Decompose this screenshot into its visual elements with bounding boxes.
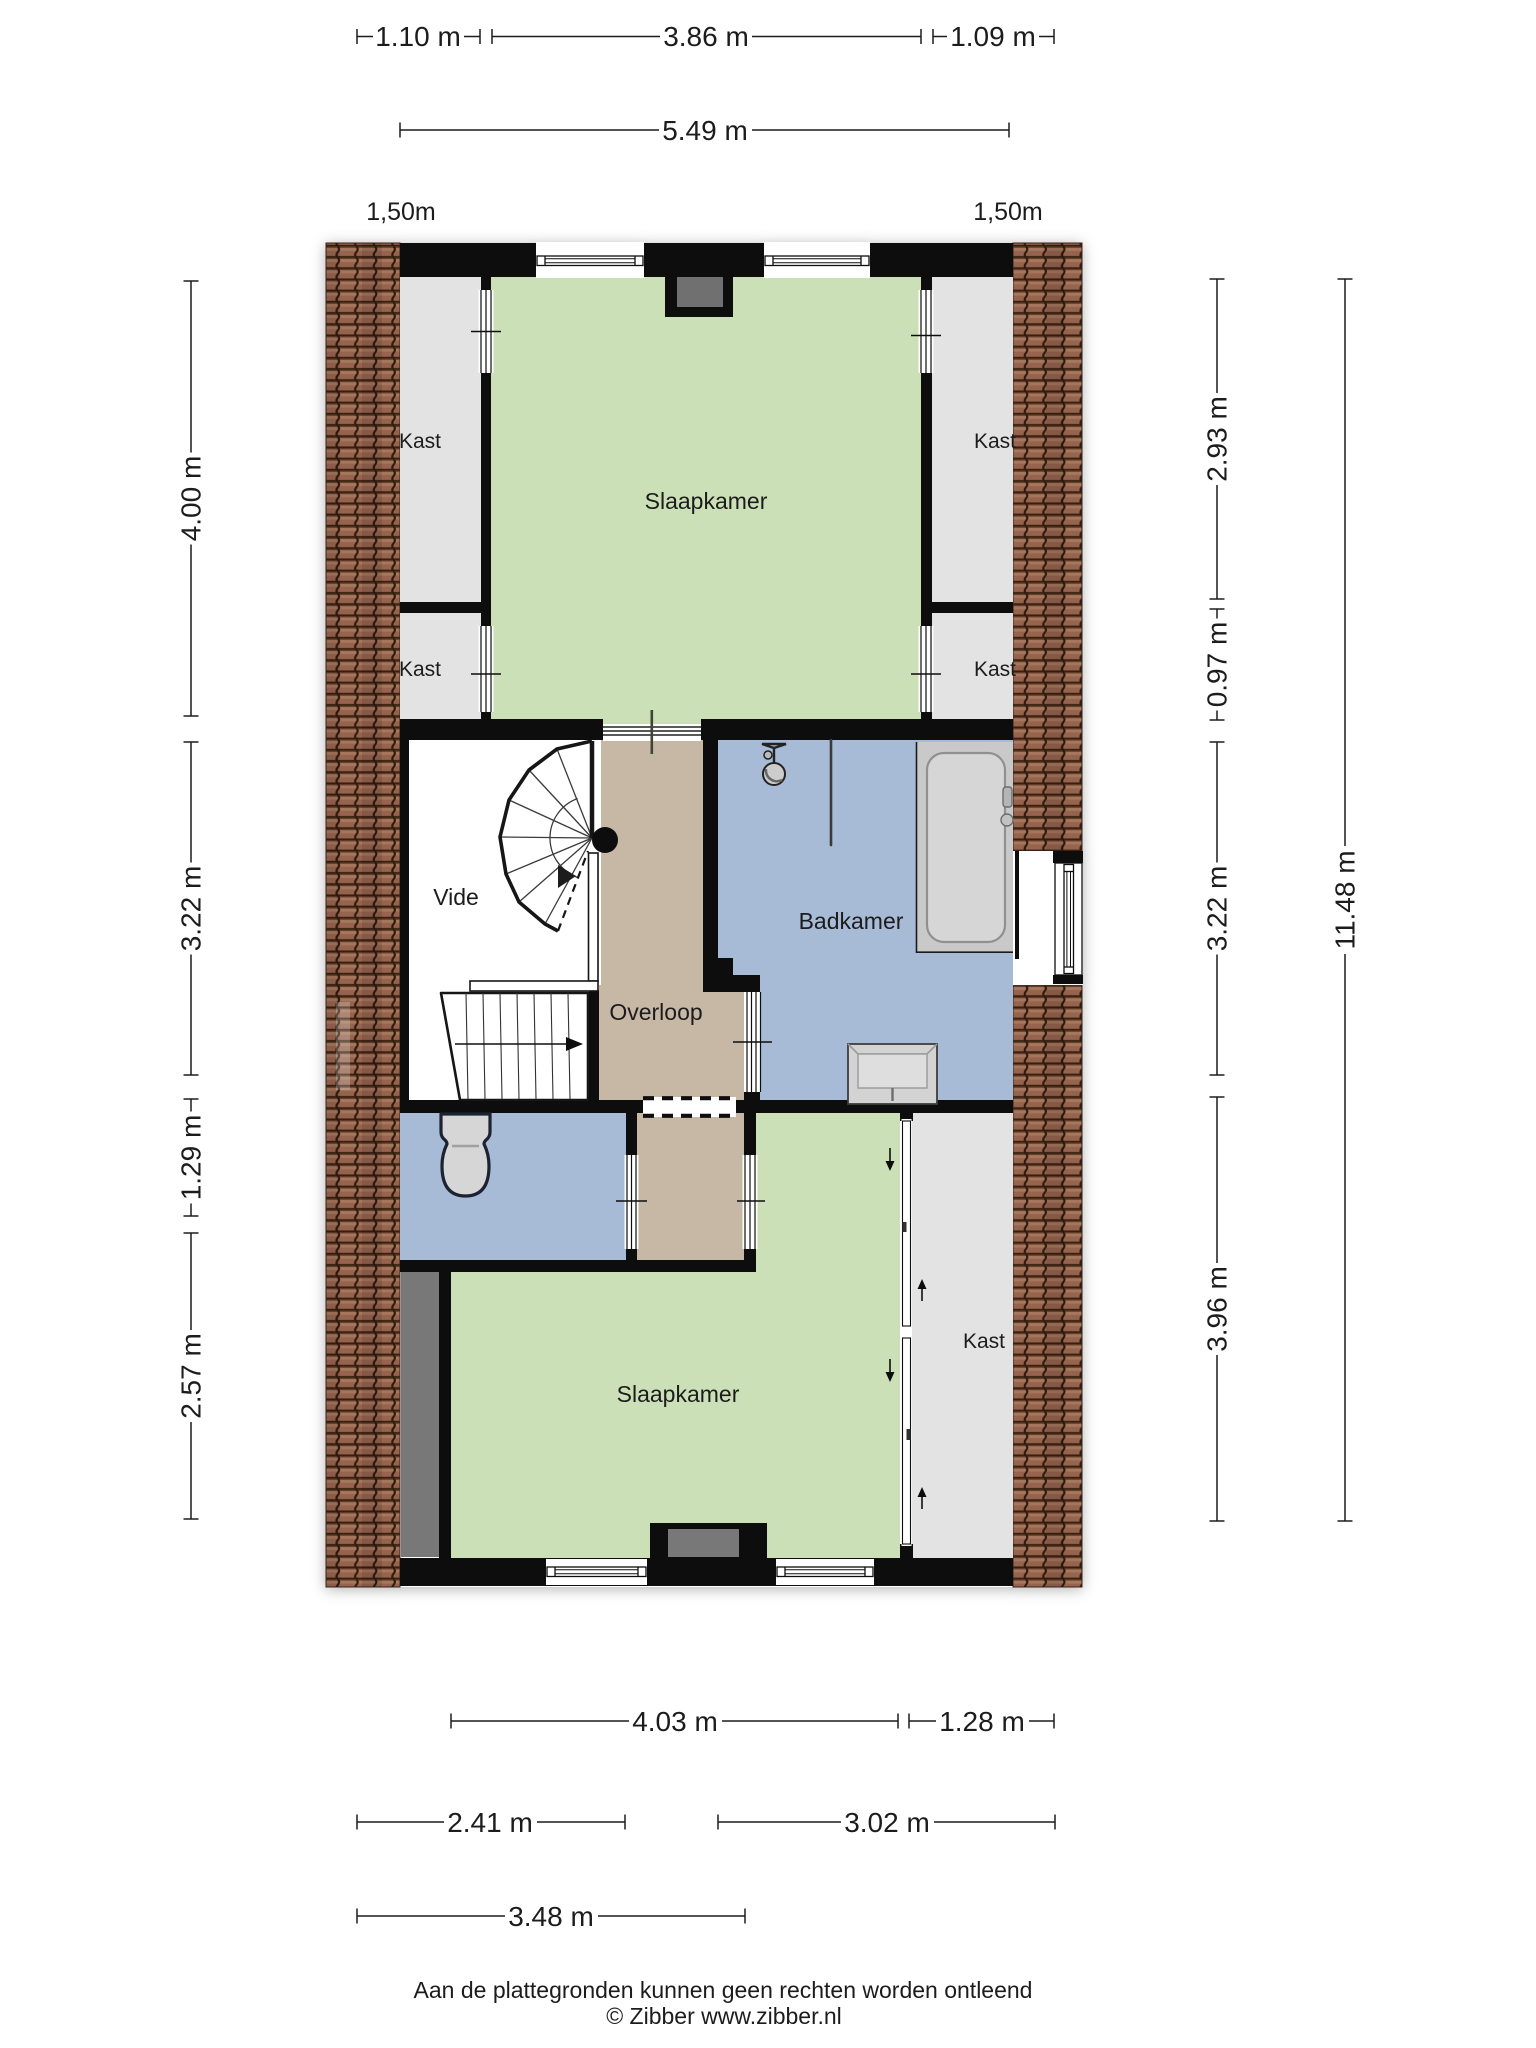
svg-text:5.49 m: 5.49 m — [662, 115, 748, 146]
svg-text:11.48 m: 11.48 m — [1330, 850, 1361, 949]
svg-text:0.97 m: 0.97 m — [1202, 622, 1233, 708]
svg-text:1.28 m: 1.28 m — [939, 1706, 1025, 1737]
svg-text:2.41 m: 2.41 m — [447, 1807, 533, 1838]
svg-text:Slaapkamer: Slaapkamer — [645, 488, 768, 514]
svg-text:3.96 m: 3.96 m — [1202, 1266, 1233, 1352]
svg-text:Aan de plattegronden kunnen ge: Aan de plattegronden kunnen geen rechten… — [414, 1977, 1033, 2003]
svg-text:2.57 m: 2.57 m — [176, 1333, 207, 1419]
svg-text:4.03 m: 4.03 m — [632, 1706, 718, 1737]
svg-text:Kast: Kast — [963, 1330, 1005, 1353]
svg-text:Kast: Kast — [399, 658, 441, 681]
svg-text:1.10 m: 1.10 m — [375, 21, 461, 52]
svg-text:3.48 m: 3.48 m — [508, 1901, 594, 1932]
svg-text:Kast: Kast — [974, 658, 1016, 681]
svg-text:1,50m: 1,50m — [973, 198, 1042, 226]
svg-text:1,50m: 1,50m — [366, 198, 435, 226]
svg-text:2.93 m: 2.93 m — [1202, 396, 1233, 482]
svg-text:3.86 m: 3.86 m — [663, 21, 749, 52]
svg-text:Badkamer: Badkamer — [799, 908, 904, 934]
svg-text:Overloop: Overloop — [609, 999, 702, 1025]
svg-text:Kast: Kast — [974, 430, 1016, 453]
svg-text:Kast: Kast — [399, 430, 441, 453]
svg-text:4.00 m: 4.00 m — [176, 456, 207, 542]
svg-text:3.22 m: 3.22 m — [176, 866, 207, 952]
svg-text:1.29 m: 1.29 m — [176, 1115, 207, 1201]
svg-text:© Zibber www.zibber.nl: © Zibber www.zibber.nl — [606, 2003, 842, 2029]
svg-text:1.09 m: 1.09 m — [950, 21, 1036, 52]
svg-text:3.02 m: 3.02 m — [844, 1807, 930, 1838]
svg-text:3.22 m: 3.22 m — [1202, 866, 1233, 952]
svg-text:Slaapkamer: Slaapkamer — [617, 1381, 740, 1407]
svg-text:Vide: Vide — [433, 884, 479, 910]
